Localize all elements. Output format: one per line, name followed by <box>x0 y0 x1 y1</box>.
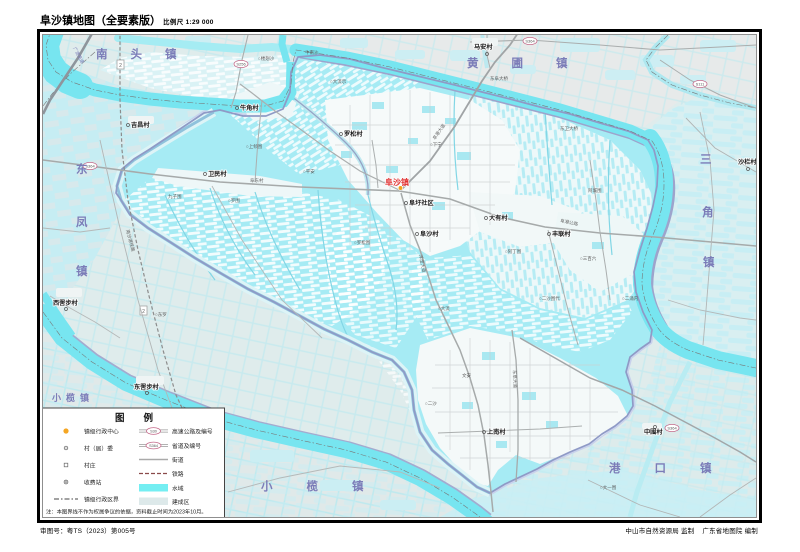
svg-text:西罟步村: 西罟步村 <box>53 299 79 307</box>
svg-text:沙栏村: 沙栏村 <box>738 158 756 166</box>
svg-text:○大一围: ○大一围 <box>600 484 617 491</box>
svg-text:中围村: 中围村 <box>644 428 663 436</box>
svg-text:凤: 凤 <box>76 215 88 229</box>
svg-text:○三百六: ○三百六 <box>580 255 597 262</box>
svg-text:马安村: 马安村 <box>474 43 493 51</box>
svg-text:大有村: 大有村 <box>489 214 508 222</box>
svg-text:丰联村: 丰联村 <box>552 230 571 238</box>
svg-text:阜沙镇: 阜沙镇 <box>385 177 409 187</box>
svg-text:S111: S111 <box>696 82 706 87</box>
svg-text:东卫大桥: 东卫大桥 <box>560 125 578 132</box>
svg-text:2: 2 <box>142 309 145 315</box>
svg-text:文安: 文安 <box>462 372 471 379</box>
svg-text:水域: 水域 <box>172 485 184 493</box>
svg-text:○东罗: ○东罗 <box>155 311 167 318</box>
svg-text:注：本图界线不作为权属争议的依据，资料截止时间为2023年1: 注：本图界线不作为权属争议的依据，资料截止时间为2023年10月。 <box>46 508 207 516</box>
svg-text:阜圩社区: 阜圩社区 <box>409 199 435 207</box>
svg-text:S364: S364 <box>149 444 158 448</box>
svg-text:南头镇: 南头镇 <box>96 47 200 61</box>
svg-text:S364: S364 <box>525 39 535 44</box>
svg-text:○大流: ○大流 <box>438 305 450 312</box>
svg-text:阜沙村: 阜沙村 <box>420 230 439 238</box>
svg-text:小榄镇: 小榄镇 <box>260 479 398 493</box>
svg-text:省道及编号: 省道及编号 <box>172 442 201 450</box>
svg-text:收费站: 收费站 <box>84 479 102 487</box>
svg-text:小榄镇: 小榄镇 <box>51 392 94 403</box>
svg-text:上南村: 上南村 <box>487 428 506 436</box>
svg-text:镇: 镇 <box>703 255 715 269</box>
svg-text:○下宁: ○下宁 <box>430 141 442 148</box>
svg-text:○二涌内: ○二涌内 <box>622 295 639 302</box>
svg-text:九子围: 九子围 <box>168 193 182 200</box>
svg-text:角: 角 <box>702 205 714 219</box>
svg-text:阜东村: 阜东村 <box>250 177 264 184</box>
svg-text:○上倾围: ○上倾围 <box>246 143 263 150</box>
svg-text:吉昌村: 吉昌村 <box>131 121 150 129</box>
svg-text:罗松村: 罗松村 <box>344 130 363 138</box>
svg-text:S30: S30 <box>150 430 157 434</box>
svg-text:铁路: 铁路 <box>172 470 184 478</box>
svg-text:○阿丁围: ○阿丁围 <box>505 248 522 255</box>
svg-text:街道: 街道 <box>172 456 184 464</box>
svg-text:港口镇: 港口镇 <box>609 461 746 475</box>
svg-text:镇级行政区界: 镇级行政区界 <box>84 496 119 504</box>
svg-text:建成区: 建成区 <box>172 498 190 506</box>
svg-text:镇级行政中心: 镇级行政中心 <box>84 428 119 436</box>
svg-text:○大流示: ○大流示 <box>330 78 347 85</box>
svg-text:2: 2 <box>119 63 122 69</box>
svg-text:○罗松围: ○罗松围 <box>354 239 371 246</box>
svg-text:S364: S364 <box>667 426 677 431</box>
svg-text:○平安: ○平安 <box>303 168 315 175</box>
svg-text:图例: 图例 <box>115 412 172 424</box>
svg-text:黄圃镇: 黄圃镇 <box>467 56 601 70</box>
svg-text:村庄: 村庄 <box>84 462 96 470</box>
svg-text:卫民村: 卫民村 <box>208 170 227 178</box>
svg-text:村（居）委: 村（居）委 <box>84 445 113 453</box>
svg-text:牛南沙: 牛南沙 <box>305 49 319 56</box>
svg-text:○二沙围代: ○二沙围代 <box>539 295 560 302</box>
svg-text:东: 东 <box>76 162 88 176</box>
svg-text:○二沙: ○二沙 <box>425 401 437 406</box>
svg-text:牛角村: 牛角村 <box>240 104 259 112</box>
svg-text:东罟步村: 东罟步村 <box>134 383 160 391</box>
svg-text:三: 三 <box>700 153 712 166</box>
svg-text:高速公路及编号: 高速公路及编号 <box>172 428 213 436</box>
svg-text:东阜大桥: 东阜大桥 <box>490 75 508 82</box>
svg-text:阿城围: 阿城围 <box>588 187 602 194</box>
svg-text:S256: S256 <box>236 62 246 67</box>
svg-text:○楼翅沙: ○楼翅沙 <box>258 55 275 62</box>
svg-text:镇: 镇 <box>76 264 88 278</box>
